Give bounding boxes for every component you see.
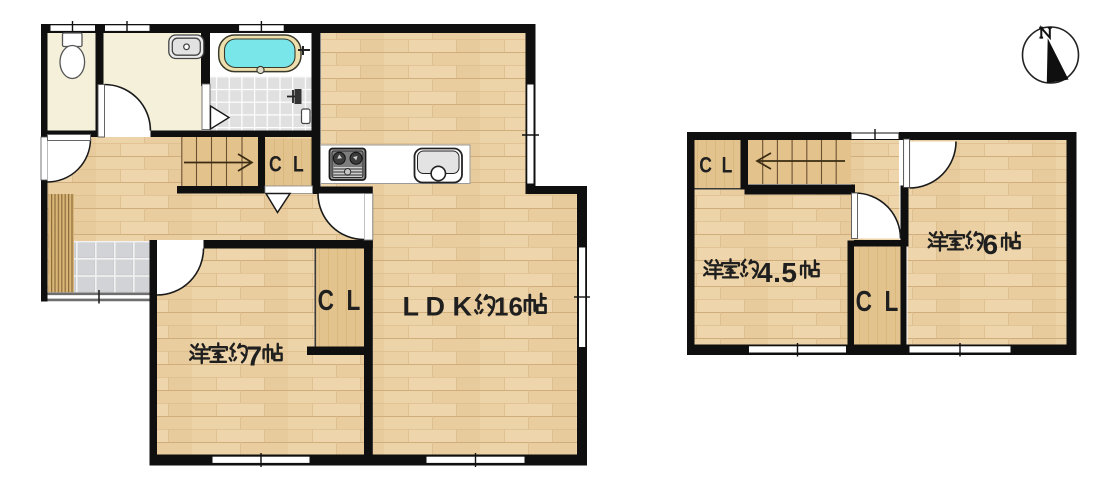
- svg-text:C L: C L: [318, 283, 364, 316]
- svg-text:6: 6: [983, 229, 999, 260]
- svg-text:16: 16: [494, 292, 523, 322]
- svg-text:4.5: 4.5: [757, 257, 797, 288]
- svg-text:K: K: [453, 292, 473, 322]
- svg-text:D: D: [426, 292, 446, 322]
- svg-text:C L: C L: [699, 154, 735, 178]
- svg-text:C L: C L: [856, 284, 902, 317]
- svg-text:7: 7: [247, 341, 263, 372]
- svg-text:C L: C L: [269, 153, 307, 177]
- svg-text:L: L: [403, 292, 420, 322]
